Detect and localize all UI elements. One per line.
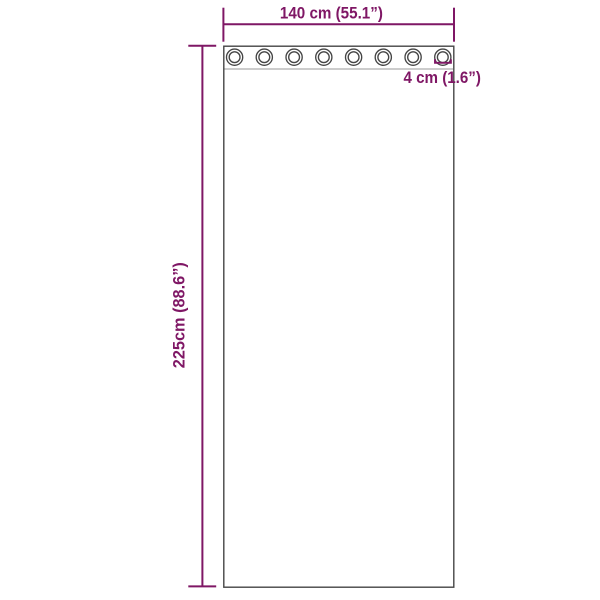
svg-text:225cm (88.6”): 225cm (88.6”) [170, 262, 189, 368]
svg-text:140 cm (55.1”): 140 cm (55.1”) [280, 3, 383, 22]
svg-text:4 cm (1.6”): 4 cm (1.6”) [403, 68, 481, 87]
